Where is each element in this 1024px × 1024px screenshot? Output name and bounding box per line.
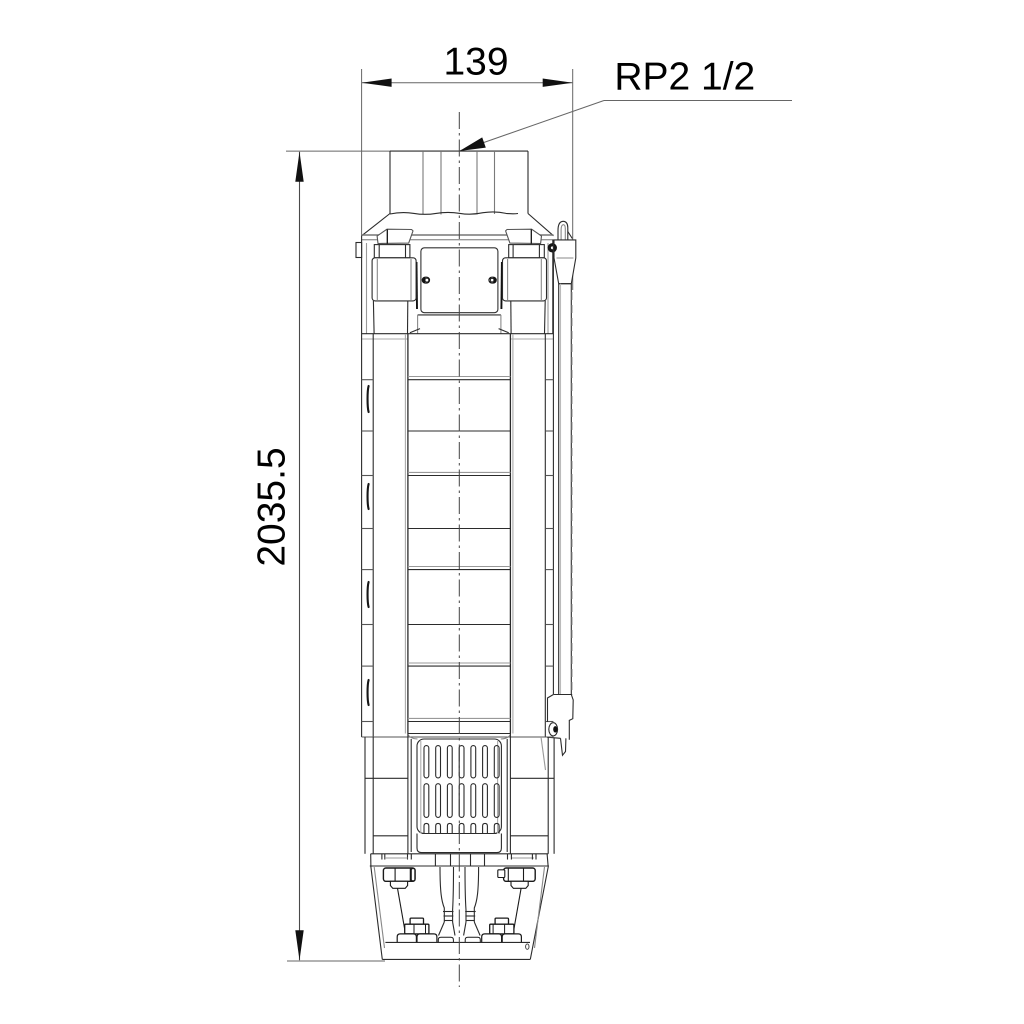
- svg-text:2035.5: 2035.5: [251, 447, 294, 566]
- svg-text:RP2 1/2: RP2 1/2: [614, 56, 755, 99]
- svg-text:139: 139: [443, 41, 508, 84]
